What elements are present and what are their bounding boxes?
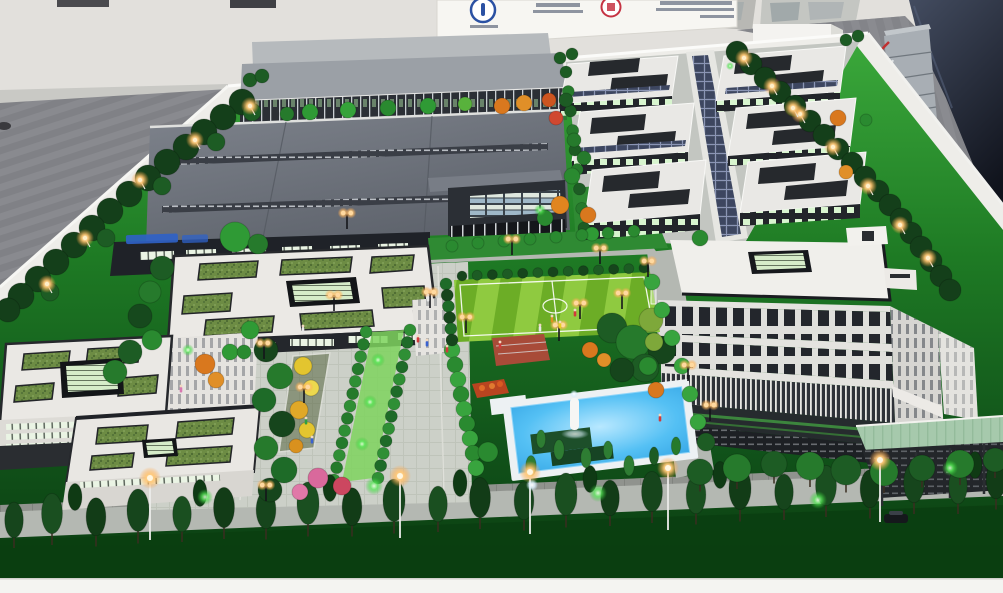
tree [840,34,852,46]
rim-lamp-core [45,282,49,286]
hedge-bush [344,400,356,412]
tree [280,107,294,121]
tree [983,448,1003,472]
hedge-bush [594,265,604,275]
hedge-bush [380,435,392,447]
tree [682,386,698,402]
tree [254,436,278,460]
rim-lamp-core [791,106,795,110]
tree [644,274,660,290]
park-lamp-globe [624,291,629,296]
tree [207,133,225,151]
red-emblem-glyph [607,3,615,11]
green-glow [355,437,369,451]
tree [796,452,824,480]
tree [723,454,751,482]
hedge-bush [377,447,389,459]
tree [118,340,142,364]
tree [380,100,396,116]
hedge-bush [339,425,351,437]
person-figurine [426,341,429,347]
wall-clip-right [230,0,276,8]
person-head [311,436,314,439]
tree [222,344,238,360]
person-figurine [180,387,183,393]
street-lamp-core [527,469,533,475]
tree [139,281,161,303]
tree [446,240,458,252]
park-lamp-globe [682,363,687,368]
conifer-tree [603,441,612,459]
tree [559,93,573,107]
rim-lamp-core [193,138,197,142]
conifer-tree [68,484,82,511]
tree [208,372,224,388]
tree [597,353,611,367]
hedge-bush [399,349,411,361]
tree [639,357,657,375]
tree [580,207,596,223]
tree [340,102,356,118]
hedge-bush [578,266,588,276]
hedge-bush [357,338,369,350]
tree [566,48,578,60]
tree [554,52,566,64]
person-head [551,315,554,318]
flower-3 [497,381,503,387]
person-figurine [659,416,662,422]
park-lamp-globe [336,293,341,298]
rim-lamp-core [898,223,902,227]
person-head [302,325,305,328]
cluster-b2-skylight [142,438,178,458]
tree [289,439,303,453]
park-lamp-globe [594,246,599,251]
tree [267,363,293,389]
tree [852,30,864,42]
green-glow [363,395,377,409]
tree [645,333,663,351]
hedge-bush [441,289,453,301]
tree [241,321,259,339]
goal-right [651,289,656,304]
hedge-bush [462,431,478,447]
tree [909,455,935,481]
hedge-bush [393,373,405,385]
tree [524,233,536,245]
tree [308,468,328,488]
conifer-tree [86,498,106,536]
person-figurine [559,323,562,329]
rim-lamp-core [138,178,142,182]
white-glow [526,479,538,491]
green-glow [534,204,546,216]
park-lamp-globe [553,323,558,328]
tree [128,304,152,328]
hedge-bush [447,357,463,373]
person-head [574,309,577,312]
park-lamp-globe [506,237,511,242]
tree [237,345,251,359]
hedge-bush [444,312,456,324]
street-lamp-core [397,473,403,479]
hedge-bush [404,324,416,336]
rim-lamp-core [248,104,252,108]
hedge-bush [360,326,372,338]
hedge-bush [341,412,353,424]
tree [664,330,680,346]
street-lamp-core [665,465,671,471]
park-lamp-globe [712,403,717,408]
tree [248,234,268,254]
hedge-bush [349,375,361,387]
tree [939,279,961,301]
hedge-bush [472,270,482,280]
tree [195,354,215,374]
hedge-bush [385,410,397,422]
tree [692,230,708,246]
park-lamp-globe [690,363,695,368]
conifer-tree [42,493,63,533]
green-glow [182,344,194,356]
hedge-bush [459,416,475,432]
person-figurine [302,327,305,333]
person-head [417,335,420,338]
tree [860,114,872,126]
conifer-tree [453,470,467,497]
park-lamp-globe [432,290,437,295]
green-glow [726,62,734,70]
tree [290,401,308,419]
tree [654,302,670,318]
hedge-bush [442,300,454,312]
tree [761,451,787,477]
green-glow [589,484,607,502]
person-figurine [305,419,308,425]
tree [577,151,591,165]
park-lamp-globe [306,385,311,390]
model-car [884,514,908,523]
rim-lamp-core [831,145,835,149]
car-roof [889,511,903,515]
person-figurine [551,317,554,323]
conifer-tree [649,447,658,465]
hedge-bush [574,183,586,195]
person-head [427,294,430,297]
hedge-bush [518,268,528,278]
person-figurine [499,343,502,349]
green-glow [942,460,958,476]
conifer-tree [214,487,235,527]
tree [292,484,308,500]
person-head [499,341,502,344]
person-head [559,321,562,324]
tree [472,237,484,249]
street-lamp-core [147,475,153,481]
park-lamp-globe [468,315,473,320]
tree [0,298,20,322]
scene-svg [0,0,1003,593]
tree [648,382,664,398]
hedge-bush [352,363,364,375]
tree [690,414,706,430]
tree [582,342,598,358]
person-figurine [427,296,430,302]
person-figurine [539,326,542,332]
tree [478,442,498,462]
tree [255,69,269,83]
park-lamp-globe [298,385,303,390]
park-lamp-globe [602,246,607,251]
park-lamp-globe [704,403,709,408]
cluster-a-skylight [286,277,360,307]
office-skylight [748,250,812,274]
park-lamp-globe [582,301,587,306]
front-rim-line [0,578,1003,580]
hedge-bush [548,267,558,277]
tree [550,231,562,243]
green-glow [809,491,827,509]
conifer-tree [671,437,680,455]
park-lamp-globe [616,291,621,296]
hedge-bush [401,336,413,348]
street-lamp-core [877,457,883,463]
tree [831,455,861,485]
hedge-bush [624,264,634,274]
tree [153,177,171,195]
rim-lamp-core [926,256,930,260]
tree [294,357,312,375]
tree [333,477,351,495]
park-lamp-globe [349,211,354,216]
hedge-bush [355,351,367,363]
tree [220,222,250,252]
person-head [426,339,429,342]
hedge-bush [440,278,452,290]
tree [610,358,634,382]
tree [567,133,581,147]
person-figurine [311,438,314,444]
hedge-bush [457,271,467,281]
conifer-tree [642,471,663,511]
conifer-tree [555,473,577,516]
hedge-bush [456,401,472,417]
person-head [539,324,542,327]
tree [687,459,713,485]
park-lamp-globe [258,341,263,346]
park-lamp-globe [266,341,271,346]
blue-emblem-glyph [481,3,485,16]
park-lamp-globe [268,483,273,488]
tree [516,95,532,111]
tree [142,330,162,350]
hedge-bush [487,270,497,280]
rim-lamp-core [83,236,87,240]
wall-clip-left [57,0,109,7]
person-head [305,417,308,420]
hedge-bush [333,449,345,461]
hedge-bush [453,386,469,402]
park-lamp-globe [514,237,519,242]
park-lamp-globe [260,483,265,488]
rim-lamp-core [742,56,746,60]
tree [697,433,715,451]
conifer-tree [775,474,794,510]
conifer-tree [429,486,448,522]
park-lamp-globe [642,259,647,264]
conifer-tree [173,496,192,532]
green-glow [197,489,213,505]
park-lamp-globe [574,301,579,306]
park-lamp-globe [341,211,346,216]
statue-glow [561,429,589,439]
hedge-bush [446,334,458,346]
model-showroom-photo [0,0,1003,593]
hedge-bush [609,264,619,274]
park-lamp-globe [328,293,333,298]
tree [494,98,510,114]
tree [103,360,127,384]
park-lamp-globe [424,290,429,295]
hedge-bush [450,372,466,388]
factory-glass-wing [428,170,567,240]
hedge-bush [445,323,457,335]
tree [252,388,276,412]
tree [542,93,556,107]
rim-lamp-core [866,184,870,188]
conifer-tree [470,477,491,517]
tree [602,227,614,239]
park-lamp-globe [650,259,655,264]
tree [576,229,588,241]
hedge-bush [391,386,403,398]
rim-lamp-core [770,84,774,88]
hedge-bush [375,460,387,472]
fountain-spray [570,390,578,398]
tree [628,225,640,237]
tree [830,110,846,126]
tree [420,98,436,114]
tree [299,422,315,438]
tree [302,104,318,120]
green-glow [365,477,383,495]
hedge-bush [396,361,408,373]
table-front-rim [0,578,1003,593]
hedge-bush [468,460,484,476]
conifer-tree [5,502,24,538]
person-figurine [574,311,577,317]
tree [551,196,569,214]
conifer-tree [624,456,634,476]
conifer-tree [127,489,149,532]
hedge-bush [336,437,348,449]
person-head [659,414,662,417]
fountain-statue [570,398,579,430]
campus-building-L3 [584,160,706,240]
hedge-bush [347,388,359,400]
tree [549,111,563,125]
green-glow [371,353,385,367]
hedge-bush [533,268,543,278]
tree [97,229,115,247]
hedge-bush [560,66,572,78]
person-head [446,345,449,348]
hedge-bush [388,398,400,410]
tree [150,256,174,280]
conifer-tree [554,440,564,460]
tree [564,168,580,184]
tree [458,97,472,111]
person-figurine [417,337,420,343]
conifer-tree [581,448,591,468]
hedge-bush [383,423,395,435]
flower-1 [479,385,485,391]
person-figurine [446,347,449,353]
table-front [0,578,1003,593]
hedge-bush [563,266,573,276]
park-lamp-globe [460,315,465,320]
hedge-bush [503,269,513,279]
hedge-bush [331,462,343,474]
person-head [180,385,183,388]
tree [839,165,853,179]
flower-2 [489,383,495,389]
conifer-tree [536,430,545,448]
